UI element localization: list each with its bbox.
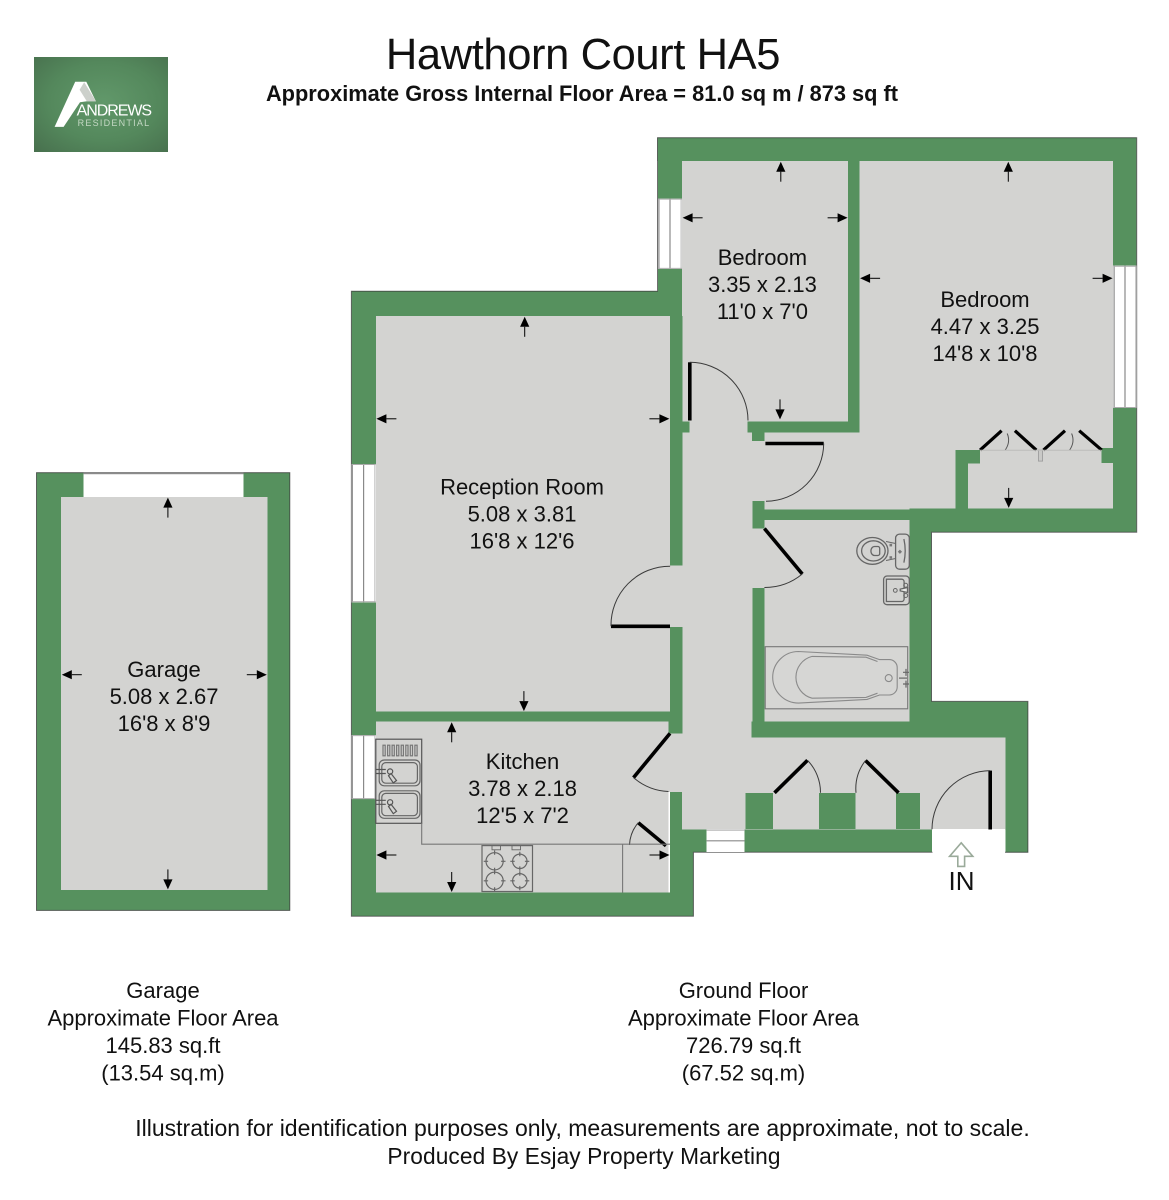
svg-text:5.08 x 2.67: 5.08 x 2.67 [110,684,219,709]
svg-text:Reception Room: Reception Room [440,475,604,500]
svg-text:3.78 x 2.18: 3.78 x 2.18 [468,776,577,801]
svg-text:726.79 sq.ft: 726.79 sq.ft [686,1033,801,1058]
svg-text:11'0 x 7'0: 11'0 x 7'0 [717,299,808,324]
svg-text:RESIDENTIAL: RESIDENTIAL [78,118,151,128]
svg-text:Bedroom: Bedroom [940,287,1029,312]
svg-text:(13.54 sq.m): (13.54 sq.m) [101,1061,225,1086]
svg-text:IN: IN [949,866,975,896]
svg-text:Hawthorn Court HA5: Hawthorn Court HA5 [386,31,780,79]
svg-text:Bedroom: Bedroom [718,245,807,270]
svg-text:4.47 x 3.25: 4.47 x 3.25 [931,314,1040,339]
svg-text:(67.52 sq.m): (67.52 sq.m) [682,1061,806,1086]
svg-text:3.35 x 2.13: 3.35 x 2.13 [708,272,817,297]
svg-text:145.83 sq.ft: 145.83 sq.ft [106,1033,221,1058]
svg-text:Approximate Floor Area: Approximate Floor Area [628,1006,860,1031]
svg-text:5.08 x 3.81: 5.08 x 3.81 [468,502,577,527]
svg-text:Ground Floor: Ground Floor [679,978,809,1003]
svg-text:Illustration for identificatio: Illustration for identification purposes… [135,1115,1029,1141]
svg-text:Garage: Garage [126,978,199,1003]
svg-text:16'8 x 12'6: 16'8 x 12'6 [469,529,574,554]
svg-text:Produced By Esjay Property Mar: Produced By Esjay Property Marketing [387,1143,780,1169]
svg-text:Approximate Floor Area: Approximate Floor Area [47,1006,279,1031]
svg-text:Garage: Garage [127,657,200,682]
svg-text:16'8 x 8'9: 16'8 x 8'9 [118,711,211,736]
svg-text:14'8 x 10'8: 14'8 x 10'8 [932,341,1037,366]
svg-text:Kitchen: Kitchen [486,749,559,774]
svg-text:12'5 x 7'2: 12'5 x 7'2 [476,803,569,828]
svg-text:Approximate Gross Internal Flo: Approximate Gross Internal Floor Area = … [266,81,898,106]
